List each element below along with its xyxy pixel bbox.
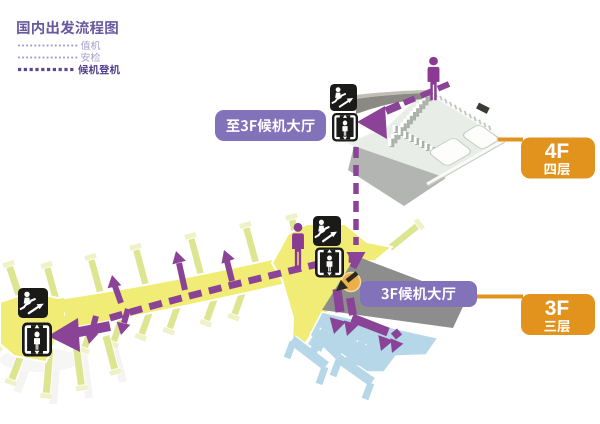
svg-text:3F: 3F (545, 297, 570, 320)
svg-text:4F: 4F (545, 140, 570, 163)
